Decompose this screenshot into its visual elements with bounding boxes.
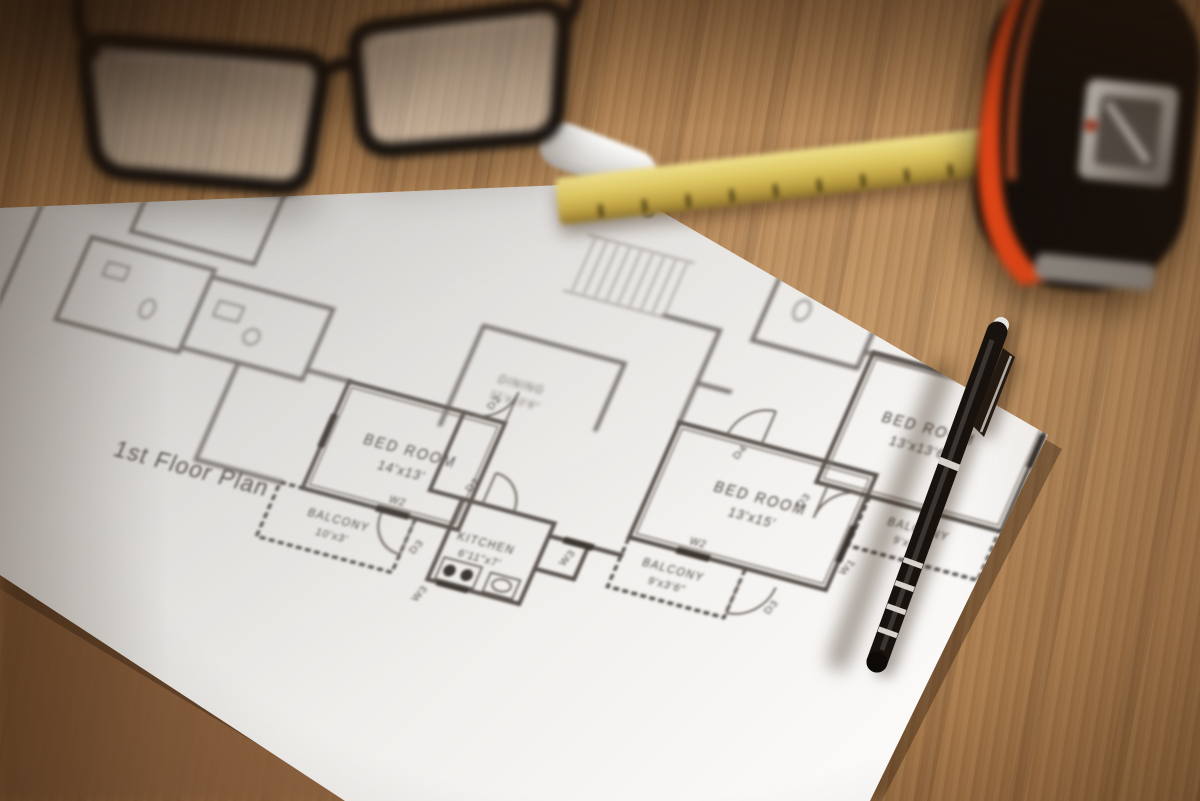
left-lens	[84, 40, 322, 187]
pen-tail-cap	[867, 652, 888, 673]
tag-w2: W2	[687, 536, 708, 551]
tape-measure	[955, 0, 1200, 325]
pen	[845, 312, 1035, 692]
room-bedroom-1: BED ROOM 14'x13'	[352, 432, 459, 490]
tag-d3: D3	[407, 538, 426, 556]
plan-title: 1st Floor Plan	[110, 435, 274, 501]
tag-w3: W3	[558, 548, 579, 568]
room-balcony-1: BALCONY 10'x3'	[299, 507, 372, 549]
glasses-left-temple	[74, 0, 98, 56]
tag-w3: W3	[410, 584, 431, 604]
photo-scene: DINING 11'x10'6"	[0, 0, 1200, 801]
room-bedroom-2: BED ROOM 13'x15'	[703, 480, 810, 538]
staircase	[563, 235, 694, 319]
eyeglasses	[10, 0, 610, 228]
plan-tags: W2 W2 W3 W3 W1 D3 D3 D3 D2 D2 D4	[351, 365, 893, 706]
tag-w2: W2	[387, 494, 408, 509]
room-kitchen: KITCHEN 6'11"x7'	[448, 531, 516, 572]
room-balcony-2: BALCONY 9'x3'6"	[634, 557, 707, 599]
